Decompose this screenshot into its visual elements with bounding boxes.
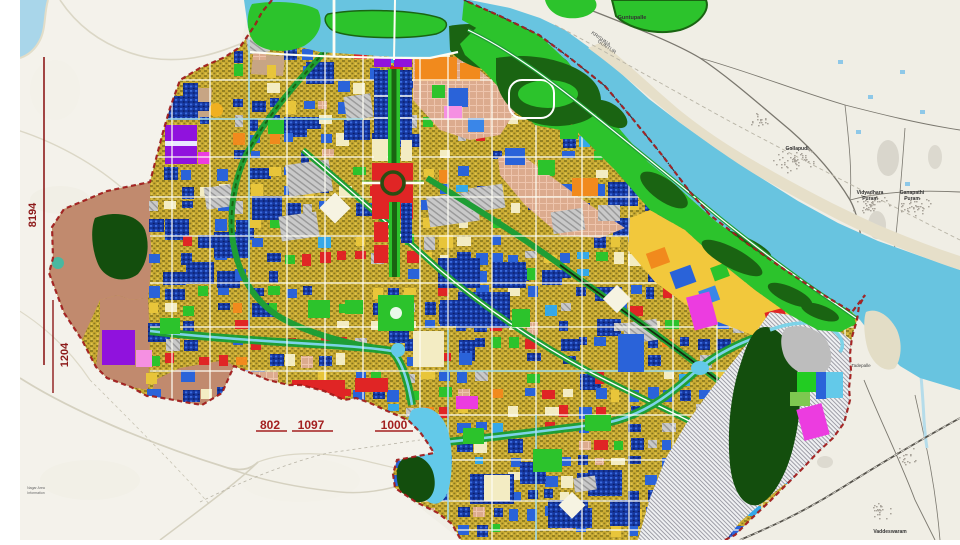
svg-text:Information: Information <box>27 491 45 495</box>
svg-text:Gollapudi: Gollapudi <box>785 146 809 152</box>
svg-text:Puram: Puram <box>904 196 920 202</box>
svg-text:Guntupalle: Guntupalle <box>618 15 647 21</box>
svg-text:Puram: Puram <box>862 196 878 202</box>
svg-text:1204: 1204 <box>59 342 71 367</box>
svg-text:8194: 8194 <box>27 202 39 227</box>
svg-text:1000: 1000 <box>381 418 408 432</box>
svg-text:Tadepalle: Tadepalle <box>851 363 871 368</box>
svg-text:Nagar Area: Nagar Area <box>27 486 45 490</box>
svg-text:1097: 1097 <box>298 418 325 432</box>
svg-text:Vaddeswaram: Vaddeswaram <box>873 529 907 535</box>
svg-text:802: 802 <box>260 418 280 432</box>
